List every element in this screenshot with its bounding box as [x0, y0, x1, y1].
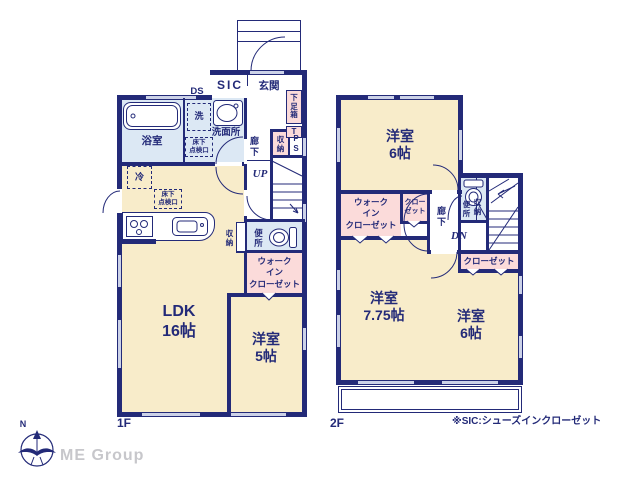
hall-door-arc-icon: [404, 224, 428, 251]
wic-label-1f: ウォーク イン クローゼット: [246, 256, 303, 290]
ds-label: DS: [186, 86, 208, 97]
toilet-label-2f: 便 所: [461, 198, 472, 220]
entrance-door-arc-icon: [251, 37, 285, 71]
up-label: UP: [249, 168, 271, 182]
bathtub-icon: [123, 102, 181, 130]
floor-hatch-ldk: 床下 点検口: [154, 189, 182, 209]
floorplan-canvas: 洗 床下 点検口 冷 床下 点検口 DS SIC 玄関 下 足 箱 T 浴室 洗…: [0, 0, 640, 480]
genkan-step-line: [246, 160, 270, 161]
washroom-label: 洗面所: [204, 127, 248, 139]
toilet-door-arc-icon: [247, 196, 272, 220]
window: [336, 315, 341, 347]
window: [302, 138, 307, 156]
wall: [227, 293, 231, 415]
toilet-icon-1f: [268, 226, 298, 249]
balcony: [338, 386, 522, 413]
window: [518, 276, 523, 294]
closet-door-notch-icon: [352, 236, 368, 244]
window: [442, 380, 498, 385]
floor-hatch-washroom: 床下 点検口: [185, 137, 213, 157]
ps-label: P S: [290, 131, 302, 156]
floor2-label: 2F: [330, 416, 356, 430]
hall-storage-label: 収 納: [272, 131, 289, 156]
window: [302, 328, 307, 350]
window: [117, 320, 122, 368]
closet-bottom-label: クローゼット: [462, 254, 516, 269]
storage-label-2f: 収 納: [472, 196, 483, 218]
floor1-label: 1F: [117, 416, 143, 430]
closet-door-notch-icon: [466, 269, 480, 276]
closet-door-notch-icon: [494, 269, 508, 276]
stairs-up-icon: [272, 158, 302, 217]
ldk-label: LDK 16帖: [146, 302, 212, 342]
window: [117, 255, 122, 287]
bedroom6-top-label: 洋室 6帖: [376, 126, 424, 164]
window: [142, 412, 200, 417]
wall: [302, 70, 307, 417]
bedroom-door-arc-icon: [433, 165, 458, 190]
kitchen-sink-icon: [172, 217, 208, 236]
bedroom5-label: 洋室 5帖: [242, 330, 290, 366]
compass-icon: [14, 426, 60, 472]
ldk-door-arc-icon: [216, 167, 243, 194]
bedroom-door-arc-icon: [431, 252, 457, 278]
stairs-down-icon: [489, 177, 518, 252]
hall-label-1f: 廊 下: [248, 134, 261, 160]
window: [231, 412, 286, 417]
washroom-door-arc-icon: [216, 137, 243, 164]
wic-label-2f: ウォーク イン クローゼット: [343, 196, 399, 232]
side-door-arc-icon: [103, 191, 120, 213]
sic-label: SIC: [214, 78, 246, 92]
closet-door-notch-icon: [378, 236, 394, 244]
entrance-opening: [250, 70, 284, 75]
hall-label-2f: 廊 下: [435, 204, 448, 230]
balcony-inner-rail: [341, 389, 519, 410]
bedroom775-label: 洋室 7.75帖: [352, 286, 416, 328]
toilet-storage-label: 収 納: [224, 227, 235, 249]
fridge-box: 冷: [127, 166, 152, 189]
shoebox-label: 下 足 箱: [286, 90, 302, 124]
porch-step-line: [237, 31, 301, 32]
stove-icon: [126, 216, 153, 237]
sic-note: ※SIC:シューズインクローゼット: [452, 416, 612, 429]
kitchen-base-wall: [122, 239, 156, 244]
genkan-label: 玄関: [250, 80, 288, 93]
window: [400, 95, 434, 100]
washbasin-icon: [213, 100, 243, 126]
window: [458, 130, 463, 160]
door-opening: [244, 139, 247, 164]
closet-small-label: クロー ゼット: [403, 194, 427, 220]
toilet-closet: [236, 222, 246, 252]
bathroom-label: 浴室: [130, 135, 174, 148]
toilet-label-1f: 便 所: [252, 226, 265, 250]
wall: [236, 250, 305, 253]
window: [358, 380, 414, 385]
toilet-door-arc-icon: [448, 196, 462, 220]
sic-divider: [247, 72, 248, 86]
window: [336, 270, 341, 290]
bedroom6-bottom-label: 洋室 6帖: [446, 306, 496, 344]
brand-logo-text: ME Group: [60, 447, 144, 465]
door-opening: [432, 190, 457, 194]
window: [518, 336, 523, 358]
window: [336, 128, 341, 162]
closet-door-notch-icon: [262, 293, 276, 301]
dn-label: DN: [447, 230, 471, 244]
window: [368, 95, 394, 100]
